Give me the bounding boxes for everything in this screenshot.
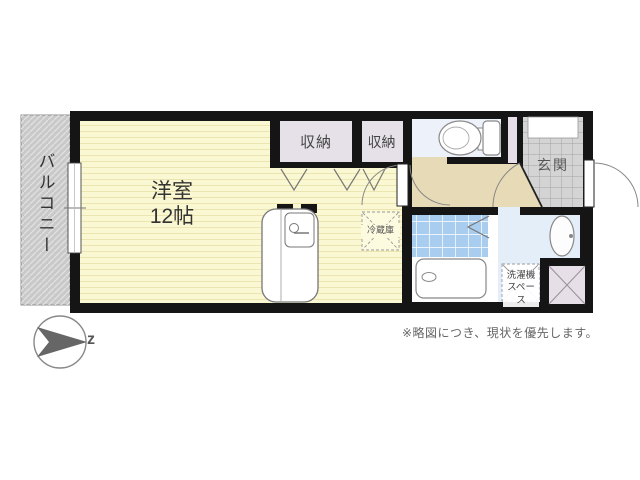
pipe-space [549,266,585,304]
closet-b-floor [362,121,403,162]
balcony-area [21,115,70,305]
kitchen-unit [262,204,318,302]
floor-plan-drawing [0,0,640,480]
compass-icon [34,316,87,368]
washbasin-faucet [569,234,573,238]
bathroom-area [412,215,498,302]
front-door [584,160,638,207]
kitchen-sink-icon [285,213,314,247]
floor-plan-page: バルコニー 洋室 12帖 収納 収納 玄関 冷蔵庫 洗濯機 スペース ※略図につ… [0,0,640,480]
fridge-space [362,212,399,250]
closet-a-floor [280,121,352,162]
cabinet-strip [508,117,517,163]
bathtub-icon [416,259,486,298]
bath-folding-door-strip [488,215,498,302]
toilet-icon [439,121,500,155]
washing-machine-space [502,264,539,301]
shoe-cabinet [528,117,578,138]
